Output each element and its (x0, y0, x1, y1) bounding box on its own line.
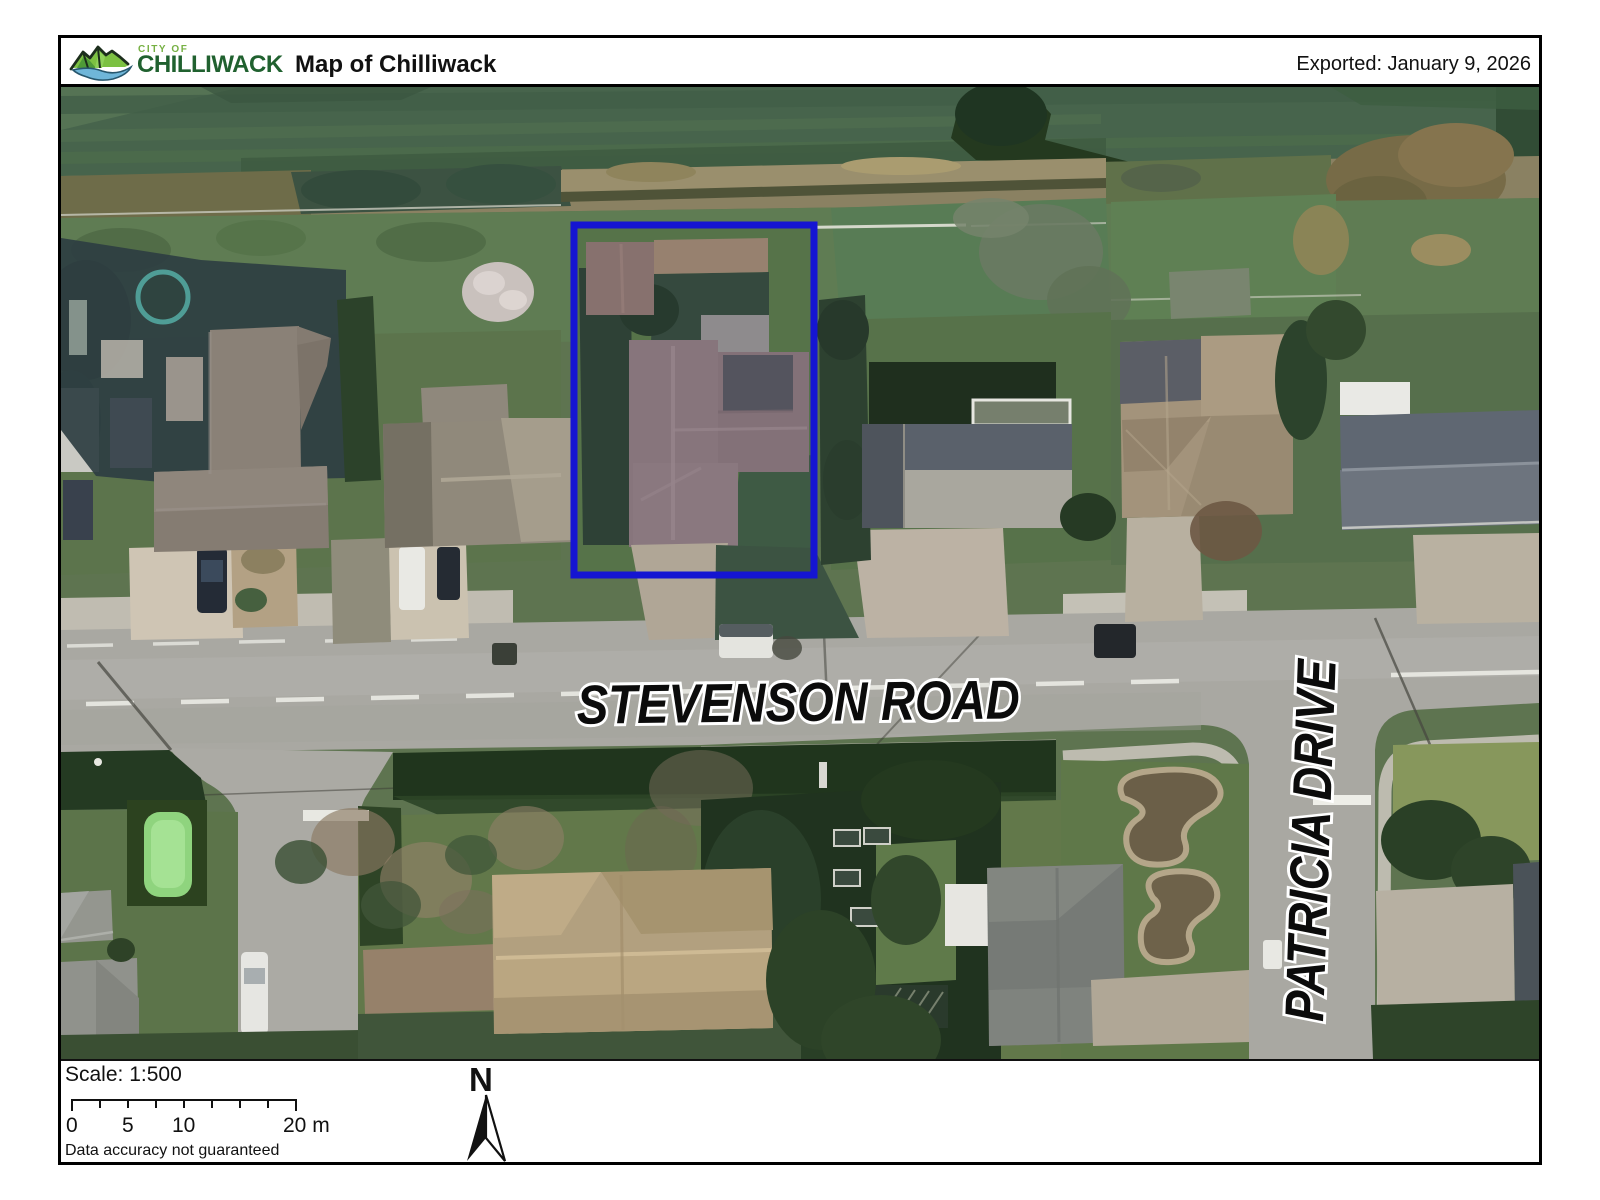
svg-text:STEVENSON ROAD: STEVENSON ROAD (576, 668, 1020, 735)
svg-text:PATRICIA DRIVE: PATRICIA DRIVE (1273, 657, 1348, 1023)
